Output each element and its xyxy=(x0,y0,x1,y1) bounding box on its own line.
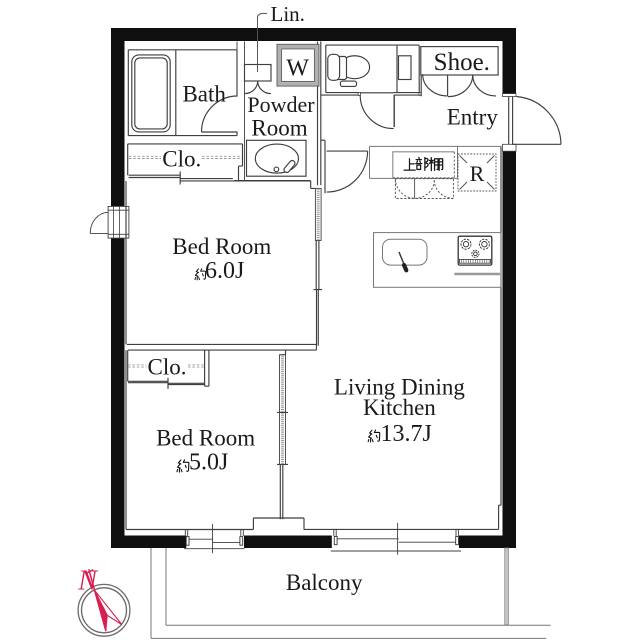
svg-text:Room: Room xyxy=(251,115,307,140)
svg-text:13.7J: 13.7J xyxy=(381,421,432,447)
svg-text:Clo.: Clo. xyxy=(148,355,187,380)
svg-text:Bed Room: Bed Room xyxy=(156,426,255,451)
svg-text:R: R xyxy=(470,161,485,186)
svg-text:Kitchen: Kitchen xyxy=(363,395,436,420)
svg-text:Balcony: Balcony xyxy=(286,570,363,595)
svg-text:Bath: Bath xyxy=(182,82,226,107)
svg-text:N: N xyxy=(77,566,98,597)
svg-text:Lin.: Lin. xyxy=(271,2,305,26)
svg-text:Bed Room: Bed Room xyxy=(172,234,271,259)
svg-text:Clo.: Clo. xyxy=(162,147,201,172)
svg-text:5.0J: 5.0J xyxy=(189,450,228,476)
svg-text:6.0J: 6.0J xyxy=(205,258,244,284)
svg-text:Shoe.: Shoe. xyxy=(434,49,490,76)
svg-text:Powder: Powder xyxy=(247,92,315,117)
svg-text:W: W xyxy=(286,56,309,82)
svg-text:Entry: Entry xyxy=(447,105,499,130)
